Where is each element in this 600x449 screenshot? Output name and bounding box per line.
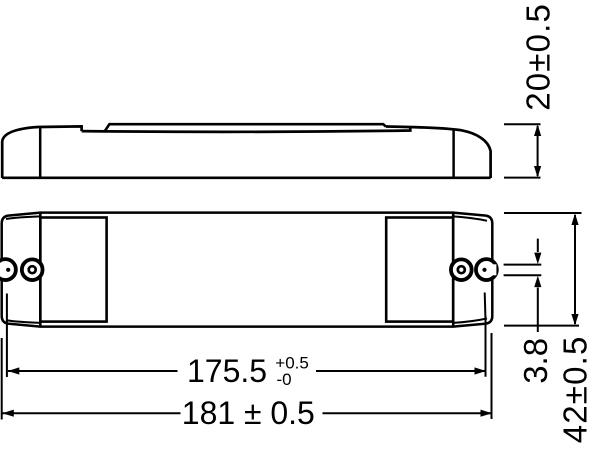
svg-text:181 ± 0.5: 181 ± 0.5 — [182, 395, 315, 431]
svg-text:42±0.5: 42±0.5 — [557, 335, 594, 443]
svg-text:175.5: 175.5 — [187, 353, 267, 389]
svg-text:3.8: 3.8 — [517, 338, 554, 384]
svg-text:20±0.5: 20±0.5 — [520, 3, 557, 111]
svg-text:-0: -0 — [277, 370, 292, 389]
